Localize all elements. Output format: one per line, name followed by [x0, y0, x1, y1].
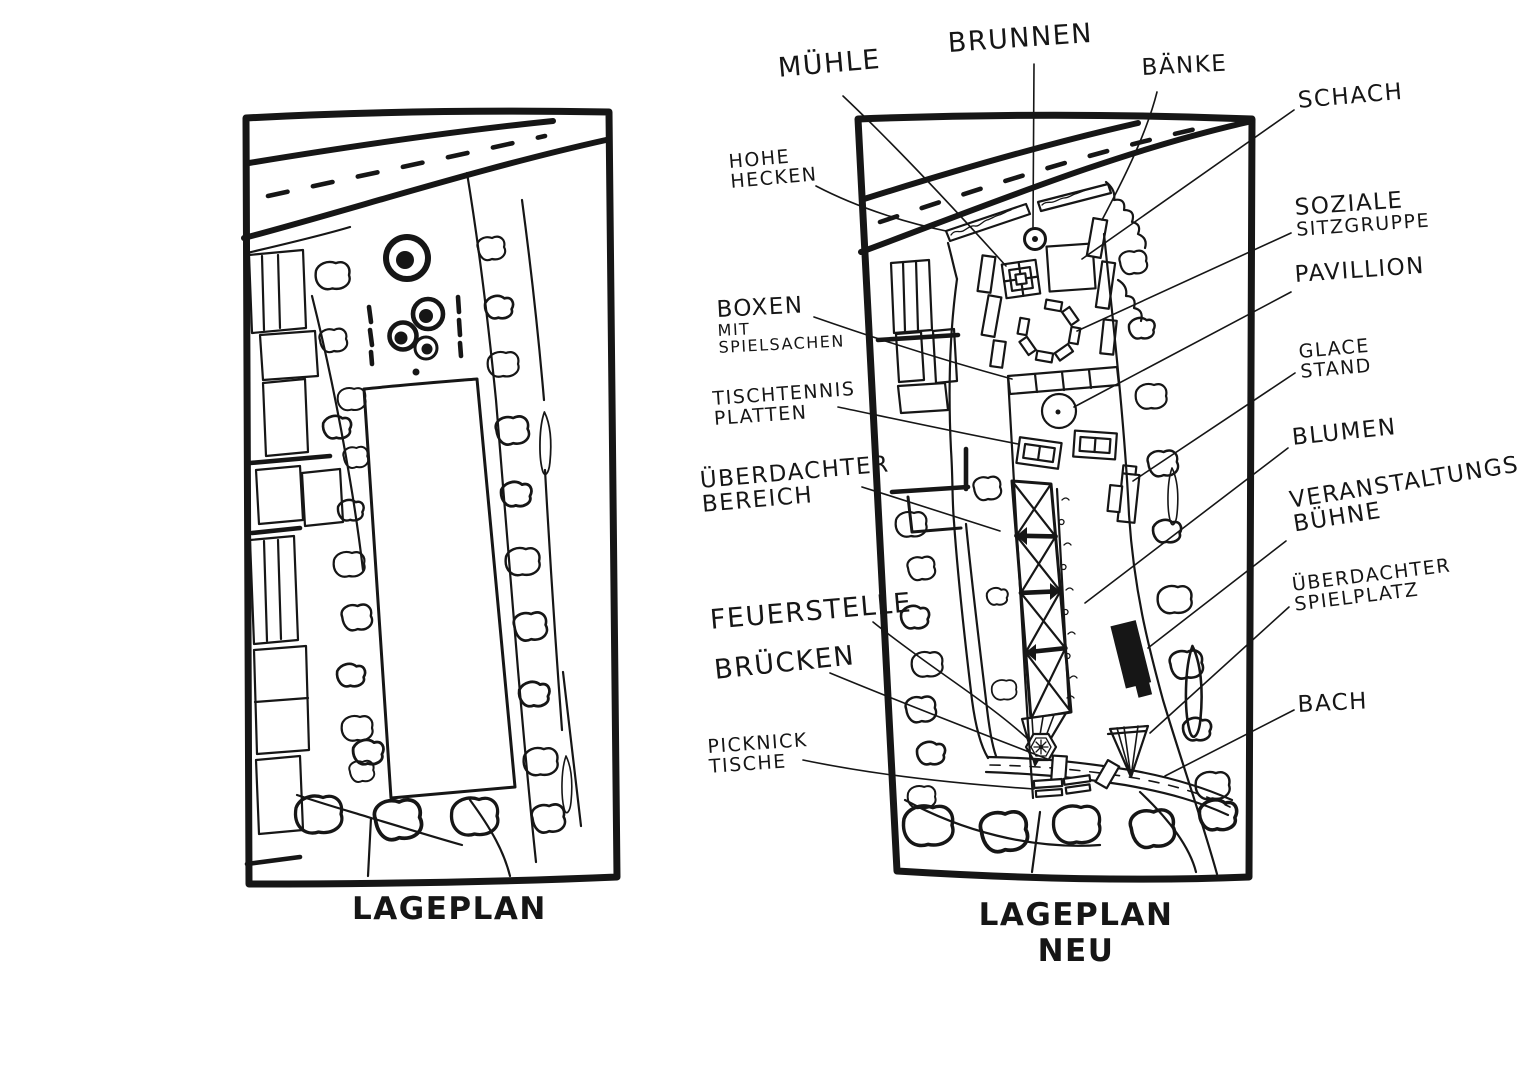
leader-blumen	[1085, 448, 1288, 603]
left-stones	[316, 262, 375, 782]
stream	[954, 522, 1232, 815]
leader-picknick	[803, 760, 1034, 789]
toy-boxes	[1008, 367, 1119, 394]
right-road	[861, 122, 1248, 252]
fountain	[1025, 229, 1046, 250]
muehle-board	[1002, 260, 1040, 298]
left-trees	[369, 237, 461, 376]
right-plan-buildings	[878, 260, 958, 413]
pavilion	[1042, 394, 1076, 428]
picnic-tables	[1034, 775, 1090, 797]
left-plan	[244, 111, 617, 884]
leader-veranstaltungs-buehne	[1148, 541, 1286, 648]
left-road	[244, 121, 606, 253]
label-hohe-hecken: HOHEHECKEN	[728, 145, 818, 192]
seating-ring	[1018, 300, 1081, 363]
event-stage	[1110, 620, 1154, 700]
table-tennis	[1016, 431, 1116, 469]
benches	[978, 218, 1117, 368]
left-plan-caption: LAGEPLAN	[352, 892, 517, 928]
right-plan	[858, 115, 1252, 879]
glace-stand-kiosk	[1107, 464, 1141, 523]
label-boxen-mit-spielsachen: BOXEN MIT SPIELSACHEN	[716, 292, 845, 356]
leader-glace-stand	[1133, 373, 1295, 481]
leader-bach	[1165, 710, 1294, 776]
right-plan-bottom-stones	[904, 792, 1237, 872]
label-baenke: BÄNKE	[1141, 53, 1228, 81]
left-buildings	[247, 250, 363, 864]
label-picknick-tische: PICKNICKTISCHE	[707, 731, 810, 777]
label-glace-stand: GLACESTAND	[1298, 337, 1373, 383]
left-plaza	[364, 379, 515, 798]
right-plan-left-stones	[896, 477, 1017, 809]
label-bach: BACH	[1297, 690, 1369, 718]
right-plan-caption: LAGEPLAN NEU	[976, 898, 1176, 969]
label-soziale-sitzgruppe: SOZIALE SITZGRUPPE	[1294, 188, 1431, 241]
covered-area	[1012, 481, 1071, 765]
site-plan-sketch: MÜHLE BRUNNEN BÄNKE SCHACH HOHEHECKEN SO…	[0, 0, 1528, 1080]
leader-brunnen	[1033, 64, 1034, 227]
leader-tischtennis	[838, 407, 1018, 444]
